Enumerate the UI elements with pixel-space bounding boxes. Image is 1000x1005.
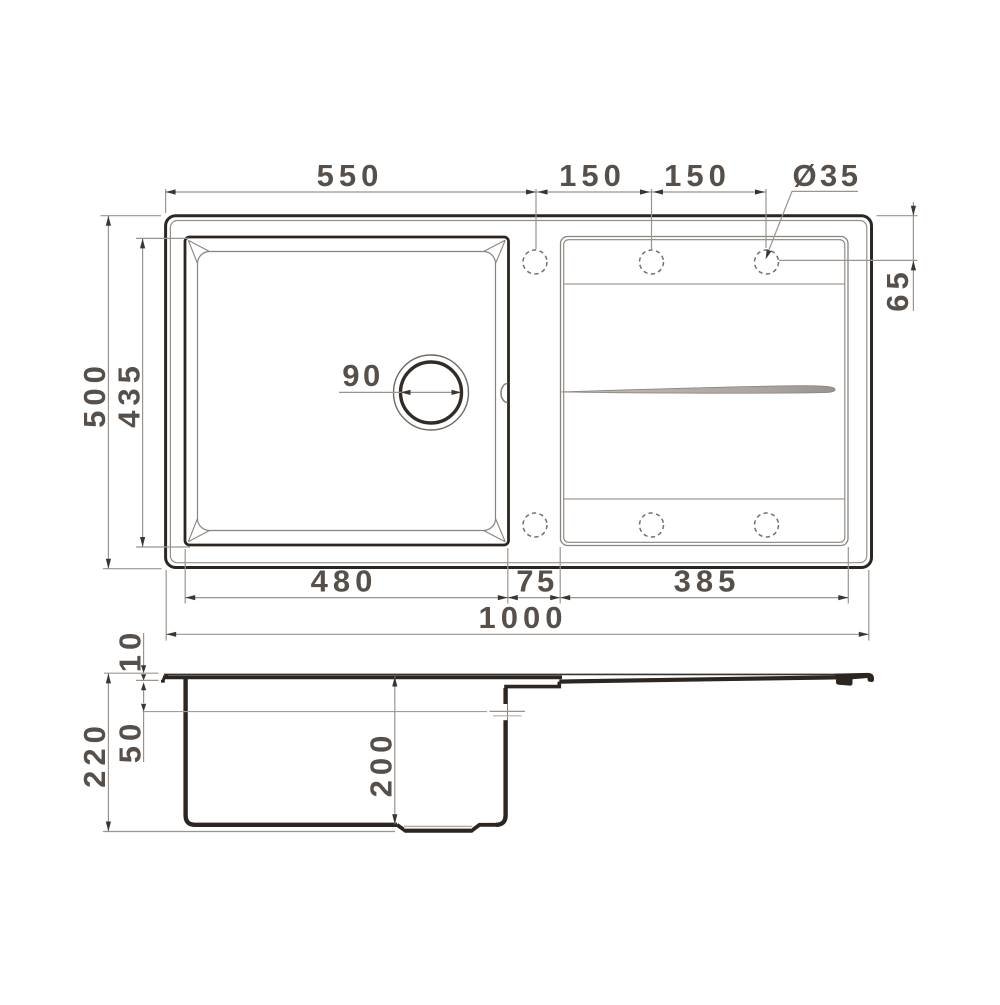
svg-text:10: 10	[112, 628, 147, 672]
svg-text:1000: 1000	[479, 600, 568, 635]
svg-text:75: 75	[516, 564, 557, 599]
svg-text:50: 50	[112, 719, 147, 763]
svg-text:385: 385	[674, 564, 741, 599]
svg-text:220: 220	[77, 721, 112, 788]
svg-text:435: 435	[111, 361, 146, 428]
svg-text:Ø35: Ø35	[792, 158, 861, 193]
svg-text:90: 90	[342, 358, 383, 393]
svg-text:480: 480	[311, 564, 378, 599]
svg-text:550: 550	[317, 158, 384, 193]
svg-text:65: 65	[880, 267, 915, 311]
svg-text:200: 200	[364, 731, 399, 798]
svg-text:150: 150	[559, 158, 626, 193]
svg-text:150: 150	[664, 158, 731, 193]
svg-text:500: 500	[77, 361, 112, 428]
